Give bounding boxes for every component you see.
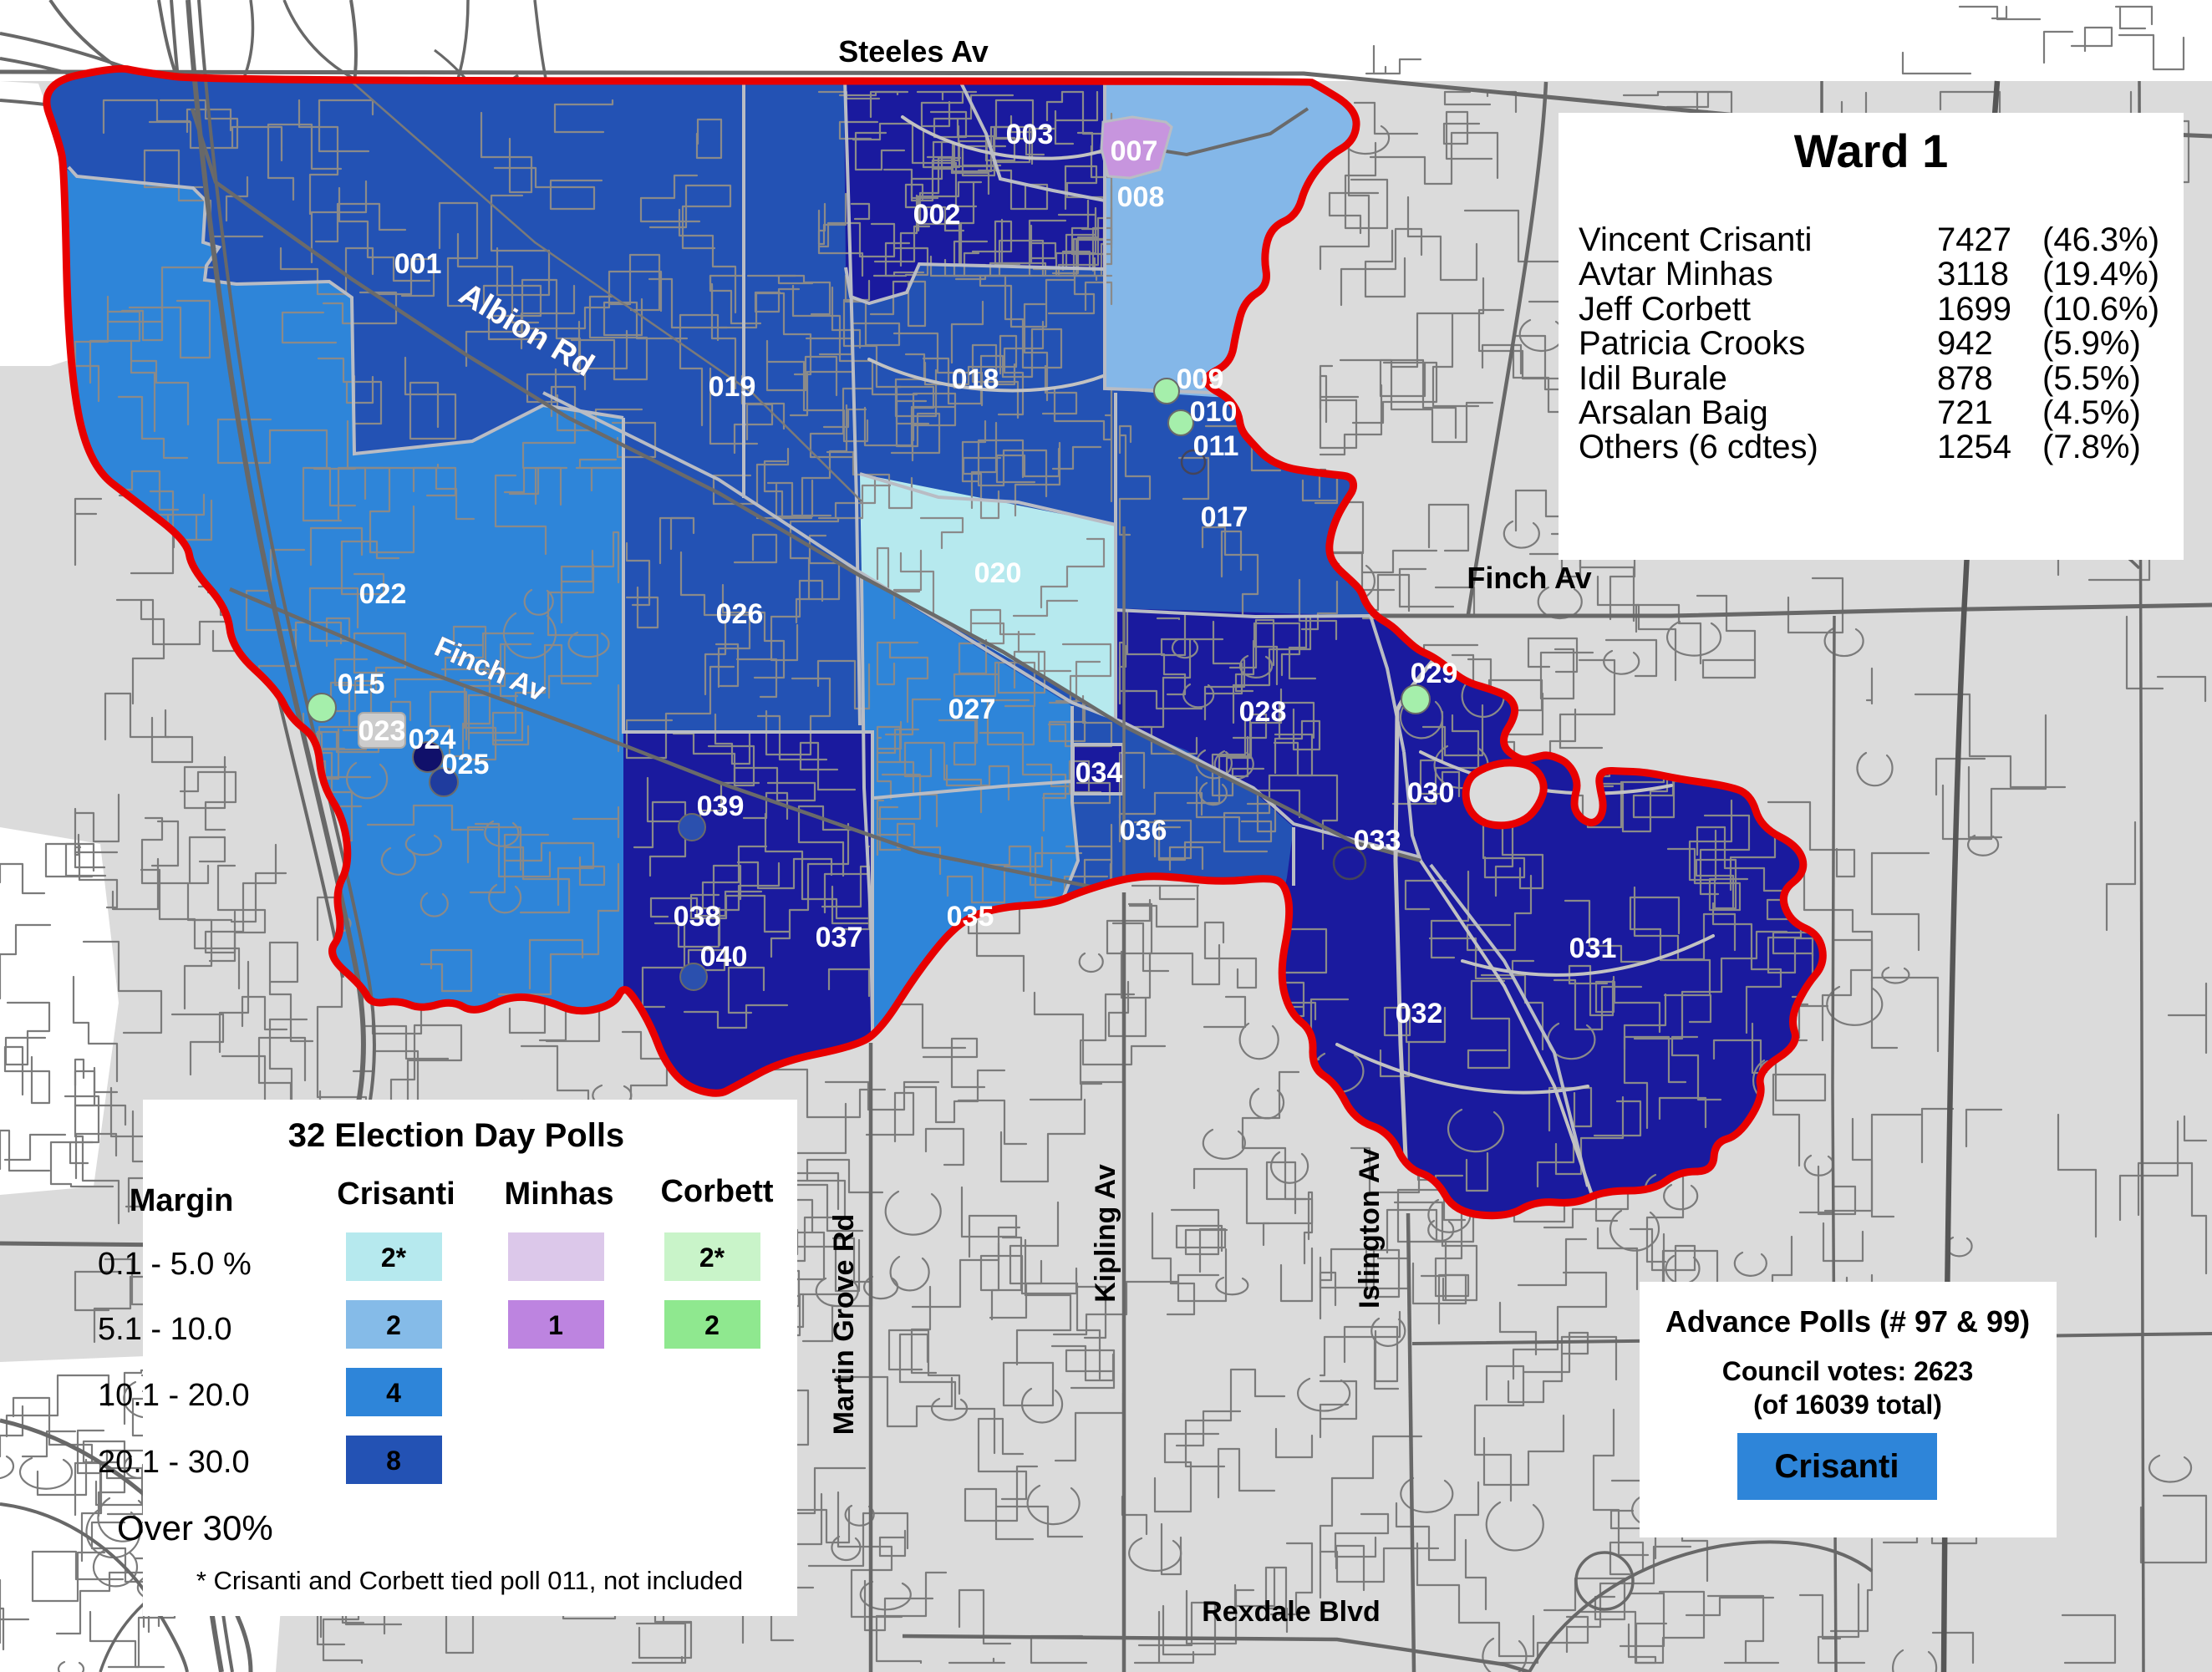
- svg-text:033: 033: [1354, 825, 1401, 856]
- svg-text:Rexdale Blvd: Rexdale Blvd: [1202, 1596, 1381, 1628]
- svg-text:(10.6%): (10.6%): [2042, 291, 2159, 328]
- svg-text:003: 003: [1006, 119, 1054, 150]
- svg-text:2: 2: [704, 1310, 720, 1340]
- svg-text:10.1 - 20.0: 10.1 - 20.0: [98, 1378, 250, 1413]
- svg-text:878: 878: [1937, 360, 1993, 397]
- svg-text:721: 721: [1937, 394, 1993, 431]
- svg-text:008: 008: [1117, 181, 1165, 213]
- svg-text:1254: 1254: [1937, 429, 2011, 465]
- svg-text:040: 040: [700, 941, 748, 973]
- svg-text:Finch Av: Finch Av: [1467, 561, 1591, 595]
- svg-text:(5.9%): (5.9%): [2042, 325, 2141, 362]
- svg-text:029: 029: [1411, 658, 1458, 689]
- svg-text:2: 2: [386, 1310, 401, 1340]
- svg-text:025: 025: [442, 749, 490, 780]
- svg-text:022: 022: [359, 578, 407, 610]
- svg-text:017: 017: [1201, 501, 1248, 533]
- svg-text:036: 036: [1120, 815, 1167, 846]
- svg-text:2*: 2*: [699, 1243, 725, 1273]
- svg-text:015: 015: [338, 668, 385, 700]
- svg-text:Vincent Crisanti: Vincent Crisanti: [1579, 221, 1812, 258]
- svg-text:Islington Av: Islington Av: [1354, 1148, 1386, 1309]
- svg-text:038: 038: [674, 901, 721, 933]
- svg-text:7427: 7427: [1937, 221, 2011, 258]
- svg-text:031: 031: [1569, 933, 1617, 964]
- svg-text:Ward 1: Ward 1: [1794, 125, 1949, 177]
- svg-text:037: 037: [816, 922, 863, 953]
- svg-text:(46.3%): (46.3%): [2042, 221, 2159, 258]
- svg-text:(19.4%): (19.4%): [2042, 256, 2159, 292]
- svg-text:1699: 1699: [1937, 291, 2011, 328]
- svg-text:030: 030: [1407, 777, 1455, 809]
- svg-text:Steeles Av: Steeles Av: [838, 34, 988, 69]
- svg-text:20.1 - 30.0: 20.1 - 30.0: [98, 1445, 250, 1480]
- svg-text:Jeff Corbett: Jeff Corbett: [1579, 291, 1751, 328]
- svg-text:Martin Grove Rd: Martin Grove Rd: [828, 1214, 860, 1435]
- svg-text:Idil Burale: Idil Burale: [1579, 360, 1727, 397]
- svg-text:Minhas: Minhas: [505, 1176, 614, 1212]
- svg-text:Kipling Av: Kipling Av: [1090, 1164, 1121, 1303]
- svg-text:019: 019: [709, 371, 756, 403]
- svg-text:034: 034: [1075, 757, 1123, 789]
- svg-text:001: 001: [394, 248, 442, 280]
- svg-text:023: 023: [358, 715, 406, 747]
- svg-text:Margin: Margin: [130, 1183, 234, 1218]
- svg-text:010: 010: [1190, 396, 1238, 428]
- svg-text:Over 30%: Over 30%: [117, 1508, 273, 1547]
- svg-text:2*: 2*: [381, 1243, 407, 1273]
- svg-text:942: 942: [1937, 325, 1993, 362]
- svg-text:5.1 - 10.0: 5.1 - 10.0: [98, 1312, 232, 1347]
- svg-text:1: 1: [548, 1310, 563, 1340]
- svg-text:Crisanti: Crisanti: [1775, 1448, 1899, 1485]
- svg-text:Crisanti: Crisanti: [337, 1176, 455, 1212]
- svg-text:* Crisanti and Corbett tied po: * Crisanti and Corbett tied poll 011, no…: [196, 1566, 743, 1595]
- svg-text:002: 002: [913, 199, 961, 231]
- svg-text:Council votes: 2623: Council votes: 2623: [1722, 1356, 1974, 1386]
- svg-text:Corbett: Corbett: [660, 1174, 773, 1209]
- svg-text:011: 011: [1193, 430, 1239, 462]
- svg-text:007: 007: [1111, 135, 1158, 167]
- svg-text:(7.8%): (7.8%): [2042, 429, 2141, 465]
- svg-text:(4.5%): (4.5%): [2042, 394, 2141, 431]
- svg-text:035: 035: [947, 901, 994, 933]
- svg-text:4: 4: [386, 1378, 401, 1408]
- svg-text:Arsalan Baig: Arsalan Baig: [1579, 394, 1768, 431]
- svg-text:8: 8: [386, 1446, 401, 1476]
- svg-text:32 Election Day Polls: 32 Election Day Polls: [288, 1117, 624, 1154]
- svg-text:(5.5%): (5.5%): [2042, 360, 2141, 397]
- svg-text:Advance Polls (# 97 & 99): Advance Polls (# 97 & 99): [1665, 1304, 2030, 1339]
- svg-text:Patricia Crooks: Patricia Crooks: [1579, 325, 1805, 362]
- svg-text:027: 027: [948, 694, 996, 725]
- svg-text:3118: 3118: [1937, 256, 2009, 292]
- svg-text:009: 009: [1177, 363, 1224, 395]
- svg-text:028: 028: [1239, 696, 1287, 728]
- svg-text:0.1 - 5.0 %: 0.1 - 5.0 %: [98, 1247, 252, 1282]
- svg-text:Avtar Minhas: Avtar Minhas: [1579, 256, 1773, 292]
- svg-text:(of 16039 total): (of 16039 total): [1753, 1390, 1942, 1420]
- svg-text:020: 020: [974, 557, 1022, 589]
- svg-text:026: 026: [716, 598, 764, 630]
- svg-text:Others (6 cdtes): Others (6 cdtes): [1579, 429, 1818, 465]
- svg-text:039: 039: [697, 790, 745, 822]
- svg-text:032: 032: [1396, 998, 1443, 1029]
- svg-text:018: 018: [952, 363, 999, 395]
